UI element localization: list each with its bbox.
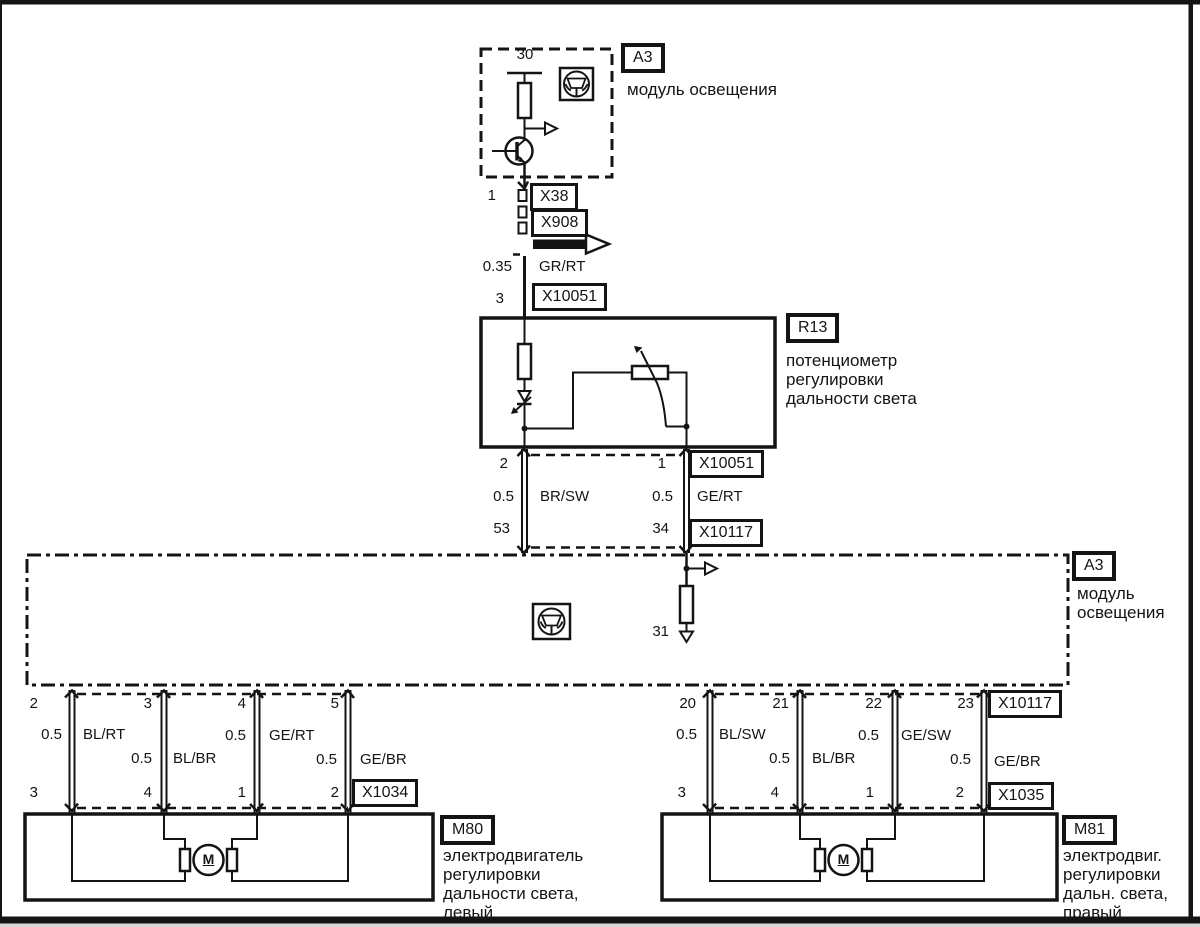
connector-x10051-label: X10051 xyxy=(532,283,607,311)
left-motor-outline xyxy=(25,814,433,900)
wire-gauge-label: 0.35 xyxy=(472,259,512,275)
right-motor-name: электродвиг. регулировки дальн. света, п… xyxy=(1063,846,1168,922)
wire-gauge-label: 0.5 xyxy=(482,489,514,505)
ground-symbol xyxy=(680,632,693,643)
branch-arrow xyxy=(545,123,557,135)
connector-x908-label: X908 xyxy=(531,209,588,237)
wire-gauge-label: 0.5 xyxy=(664,727,697,743)
left-motor-ref: M80 xyxy=(440,815,495,845)
pin-number: 1 xyxy=(482,188,496,204)
pin-number: 2 xyxy=(494,456,508,472)
light-module-outline xyxy=(27,555,1068,685)
pin-number: 5 xyxy=(315,696,339,712)
potentiometer-wiper xyxy=(641,351,666,427)
motor-brush xyxy=(227,849,237,871)
ground-pin-number: 31 xyxy=(645,624,669,640)
terminal-30-label: 30 xyxy=(511,47,539,63)
pin-number: 3 xyxy=(128,696,152,712)
pin-number: 1 xyxy=(222,785,246,801)
top-module-name: модуль освещения xyxy=(627,80,777,99)
routing-arrow-shaft xyxy=(534,241,586,249)
wire-gauge-label: 0.5 xyxy=(305,752,337,768)
wire-gauge-label: 0.5 xyxy=(938,752,971,768)
wire-color-label: BL/SW xyxy=(719,727,766,743)
pin-hook xyxy=(518,182,528,189)
resistor-symbol xyxy=(518,344,531,379)
pin-number: 34 xyxy=(645,521,669,537)
right-motor-ref: M81 xyxy=(1062,815,1117,845)
pin-number: 23 xyxy=(940,696,974,712)
pin-number: 1 xyxy=(850,785,874,801)
wire-gauge-label: 0.5 xyxy=(846,728,879,744)
pin-number: 4 xyxy=(222,696,246,712)
pin-number: 21 xyxy=(755,696,789,712)
wire-color-label: GE/SW xyxy=(901,728,951,744)
wire-color-label: GE/BR xyxy=(360,752,407,768)
left-motor-name: электродвигатель регулировки дальности с… xyxy=(443,846,583,922)
connector-x10117-label: X10117 xyxy=(689,519,763,547)
motor-brush xyxy=(815,849,825,871)
wire-color-label: GE/RT xyxy=(269,728,315,744)
pin-number: 3 xyxy=(14,785,38,801)
wire-color-label: BL/BR xyxy=(173,751,216,767)
right-motor-outline xyxy=(662,814,1057,900)
wire-gauge-label: 0.5 xyxy=(641,489,673,505)
pin-number: 2 xyxy=(940,785,964,801)
wire-color-label: BR/SW xyxy=(540,489,589,505)
routing-arrow-head xyxy=(586,235,609,254)
pin-number: 4 xyxy=(755,785,779,801)
pin-number: 1 xyxy=(652,456,666,472)
wire-gauge-label: 0.5 xyxy=(214,728,246,744)
light-module-ref: A3 xyxy=(1072,551,1116,581)
potentiometer-name: потенциометр регулировки дальности света xyxy=(786,351,917,408)
light-module-icon xyxy=(560,68,593,100)
branch-arrow-2 xyxy=(705,563,717,575)
potentiometer-ref: R13 xyxy=(786,313,839,343)
wiring-diagram-page: 30 A3 модуль освещения 1 X38 X908 0.35 G… xyxy=(0,0,1200,927)
wire-gauge-label: 0.5 xyxy=(120,751,152,767)
wire-color-label: BL/BR xyxy=(812,751,855,767)
wire-color-label: GE/BR xyxy=(994,754,1041,770)
motor-m-symbol: M xyxy=(200,851,217,867)
wire-gauge-label: 0.5 xyxy=(757,751,790,767)
connector-x1035-label: X1035 xyxy=(988,782,1054,810)
wire-color-label: GR/RT xyxy=(539,259,585,275)
connector-x10051-label-2: X10051 xyxy=(689,450,764,478)
pin-number: 4 xyxy=(128,785,152,801)
connector-x38-label: X38 xyxy=(530,183,578,211)
pin-number: 2 xyxy=(315,785,339,801)
wire-gauge-label: 0.5 xyxy=(30,727,62,743)
top-module-ref: A3 xyxy=(621,43,665,73)
wire-color-label: GE/RT xyxy=(697,489,743,505)
pin-number: 3 xyxy=(662,785,686,801)
pin-number: 53 xyxy=(486,521,510,537)
motor-brush xyxy=(180,849,190,871)
wire-color-label: BL/RT xyxy=(83,727,125,743)
fuse-symbol xyxy=(518,83,531,118)
light-module-icon-2 xyxy=(533,604,570,639)
pin-number: 22 xyxy=(848,696,882,712)
pin-number: 20 xyxy=(662,696,696,712)
motor-m-symbol: M xyxy=(835,851,852,867)
pin-number: 2 xyxy=(14,696,38,712)
connector-x10117-label-2: X10117 xyxy=(988,690,1062,718)
resistor-symbol-2 xyxy=(680,586,693,623)
light-module-name: модуль освещения xyxy=(1077,584,1165,622)
motor-brush xyxy=(862,849,872,871)
connector-x1034-label: X1034 xyxy=(352,779,418,807)
pin-number: 3 xyxy=(490,291,504,307)
